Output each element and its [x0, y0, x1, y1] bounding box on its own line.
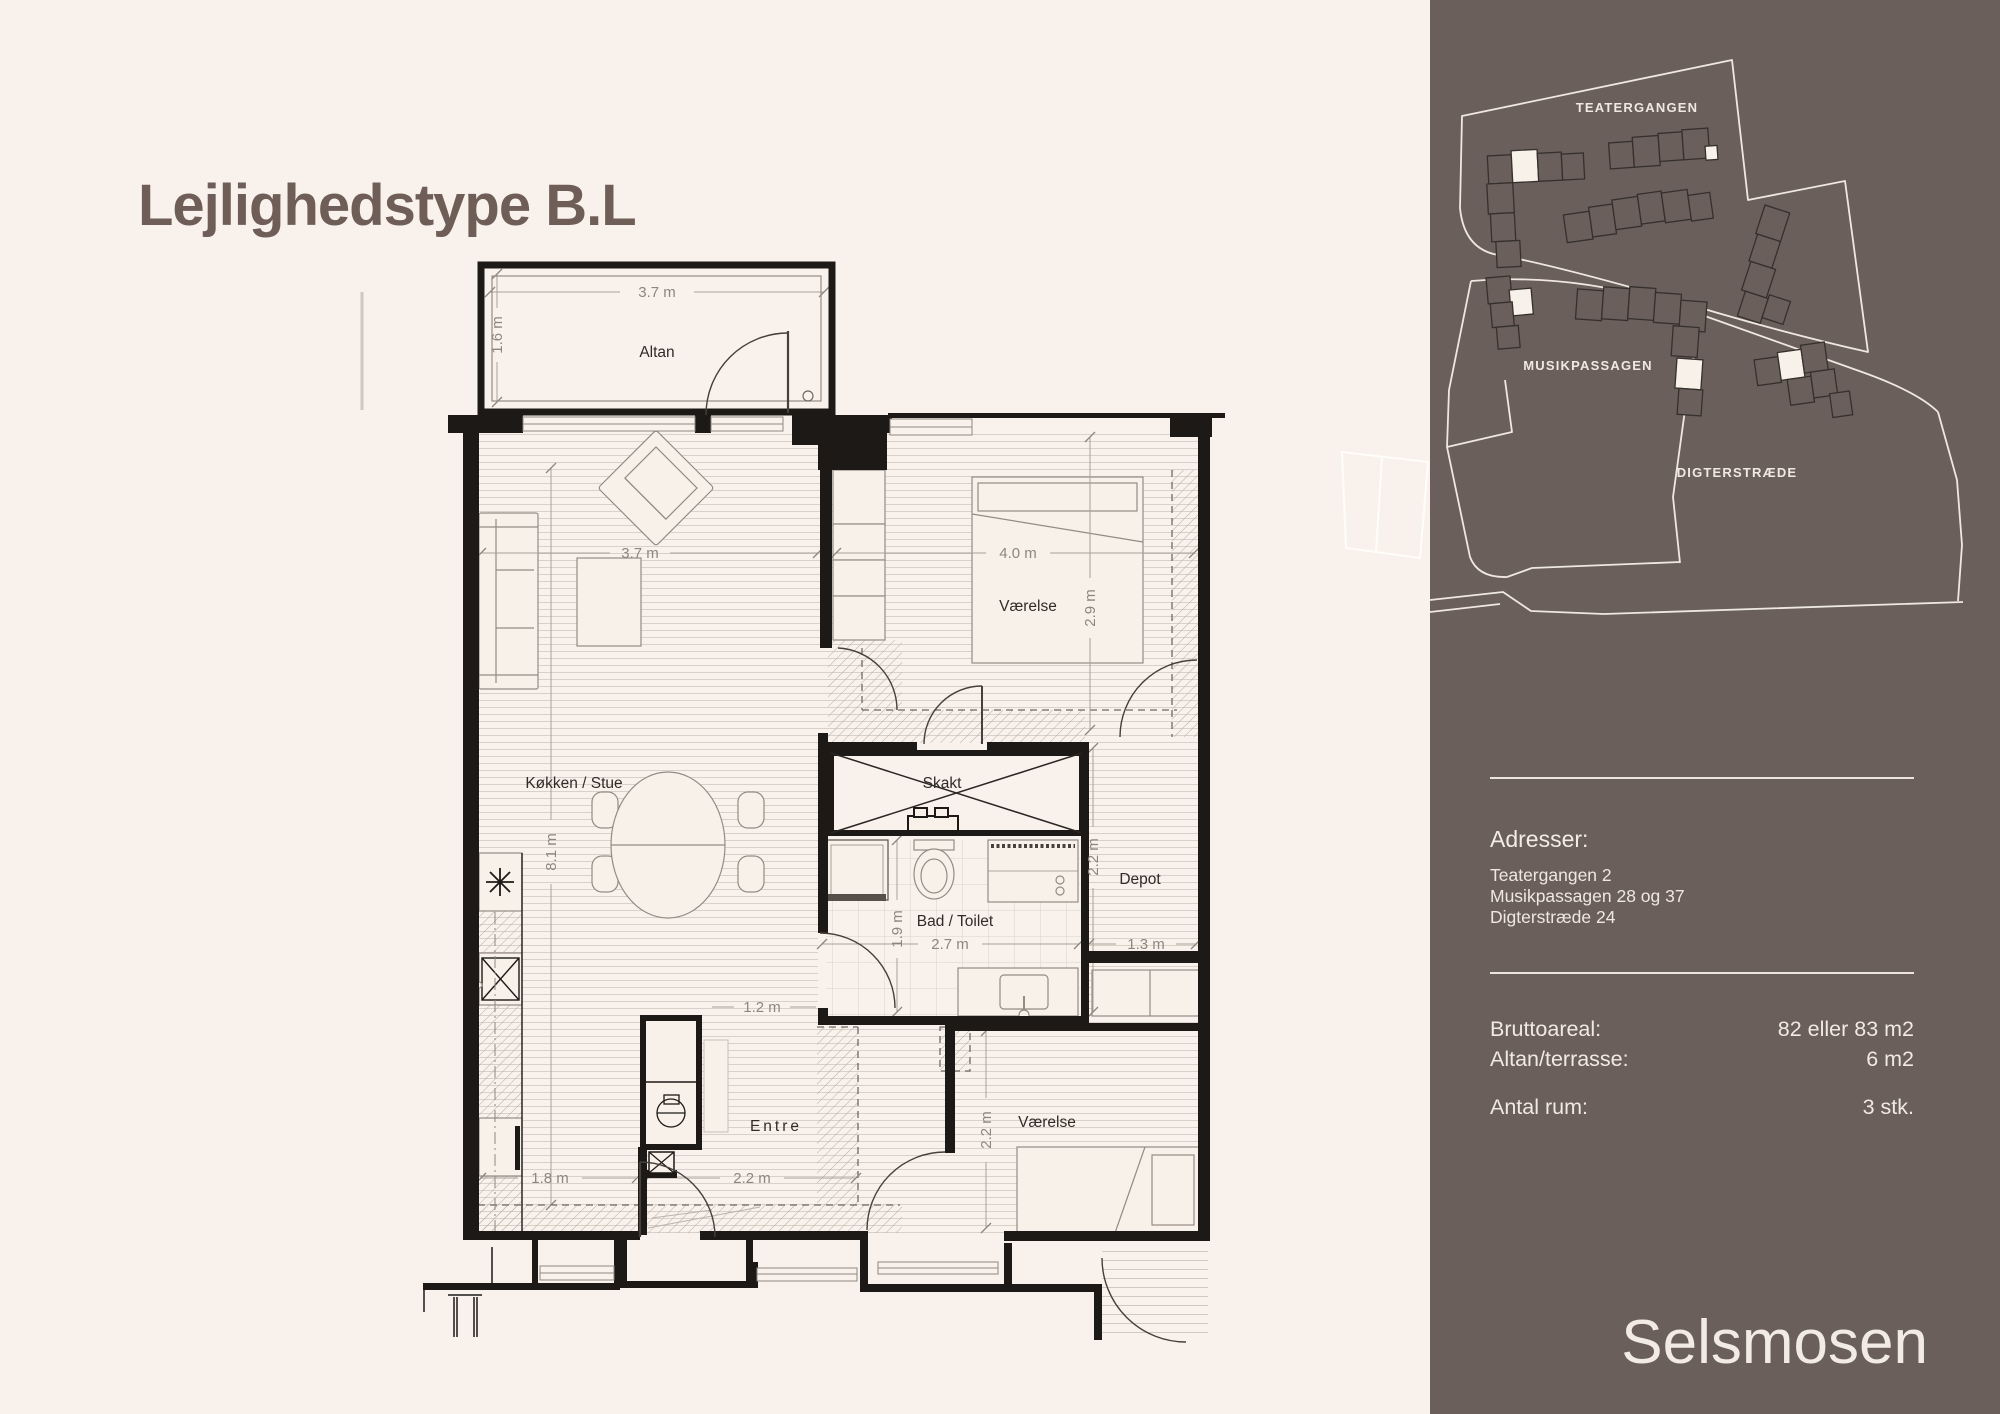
address-line: Teatergangen 2 [1490, 865, 1685, 886]
entry-bench [704, 1040, 728, 1132]
washer-column [988, 840, 1078, 902]
address-heading: Adresser: [1490, 826, 1685, 853]
railing-lines [424, 1247, 492, 1337]
building-clusters [1485, 127, 1853, 427]
sofa [479, 513, 538, 689]
wardrobe [833, 470, 885, 640]
dim-bedroom2-h: 2.2 m [978, 1111, 995, 1149]
fact-row: Altan/terrasse: 6 m2 [1490, 1044, 1914, 1074]
toilet [914, 840, 954, 899]
sidebar: TEATERGANGEN MUSIKPASSAGEN DIGTERSTRÆDE … [1430, 0, 2000, 1414]
dim-hall-w: 2.2 m [733, 1170, 771, 1187]
fact-value: 6 m2 [1866, 1044, 1914, 1074]
dim-bath-w: 2.7 m [931, 936, 969, 953]
room-label-bedroom2: Værelse [1018, 1114, 1076, 1131]
bed-double [972, 477, 1143, 663]
dim-stue-w: 3.7 m [621, 545, 659, 562]
brand-logo: Selsmosen [1621, 1312, 1928, 1374]
dim-depot-h: 2.2 m [1085, 838, 1102, 876]
dim-kitchen-w: 1.8 m [531, 1170, 569, 1187]
cooktop-icon [486, 868, 514, 896]
map-label-teatergangen: TEATERGANGEN [1576, 100, 1699, 115]
fact-label: Altan/terrasse: [1490, 1044, 1629, 1074]
shower [826, 840, 888, 901]
entry-closet [643, 1018, 699, 1173]
depot-cabinets [1092, 970, 1204, 1016]
facts-block: Bruttoareal: 82 eller 83 m2 Altan/terras… [1490, 1014, 1914, 1122]
dim-bedroom1-w: 4.0 m [999, 545, 1037, 562]
divider-top [1490, 777, 1914, 779]
room-label-depot: Depot [1119, 871, 1161, 888]
room-label-bedroom1: Værelse [999, 598, 1057, 615]
room-label-altan: Altan [639, 344, 674, 361]
dim-bath-h: 1.9 m [889, 910, 906, 948]
fact-value: 3 stk. [1863, 1092, 1914, 1122]
floorplan-sheet: Lejlighedstype B.L [0, 0, 2000, 1414]
vanity-sink [958, 968, 1078, 1020]
dim-stue-h: 8.1 m [543, 833, 560, 871]
map-label-digterstraede: DIGTERSTRÆDE [1677, 465, 1798, 480]
room-label-bath: Bad / Toilet [917, 913, 994, 930]
floor-plan: Altan Køkken / Stue Værelse Skakt Bad / … [0, 0, 1430, 1414]
address-block: Adresser: Teatergangen 2 Musikpassagen 2… [1490, 826, 1685, 928]
divider-bottom [1490, 972, 1914, 974]
dim-bedroom1-h: 2.9 m [1082, 589, 1099, 627]
fact-label: Antal rum: [1490, 1092, 1588, 1122]
site-map: TEATERGANGEN MUSIKPASSAGEN DIGTERSTRÆDE [1430, 0, 2000, 640]
room-label-skakt: Skakt [923, 775, 962, 792]
fact-row: Bruttoareal: 82 eller 83 m2 [1490, 1014, 1914, 1044]
map-label-musikpassagen: MUSIKPASSAGEN [1523, 358, 1652, 373]
room-label-stue: Køkken / Stue [525, 775, 622, 792]
bed-single [1017, 1147, 1207, 1233]
dim-depot-w: 1.3 m [1127, 936, 1165, 953]
dim-entre-w: 1.2 m [743, 999, 781, 1016]
fact-label: Bruttoareal: [1490, 1014, 1601, 1044]
dim-altan-h: 1.6 m [489, 316, 506, 354]
fact-row: Antal rum: 3 stk. [1490, 1092, 1914, 1122]
address-line: Digterstræde 24 [1490, 907, 1685, 928]
dim-altan-w: 3.7 m [638, 284, 676, 301]
room-label-entre: Entre [750, 1118, 802, 1135]
fact-value: 82 eller 83 m2 [1778, 1014, 1914, 1044]
coffee-table [577, 558, 641, 646]
address-line: Musikpassagen 28 og 37 [1490, 886, 1685, 907]
